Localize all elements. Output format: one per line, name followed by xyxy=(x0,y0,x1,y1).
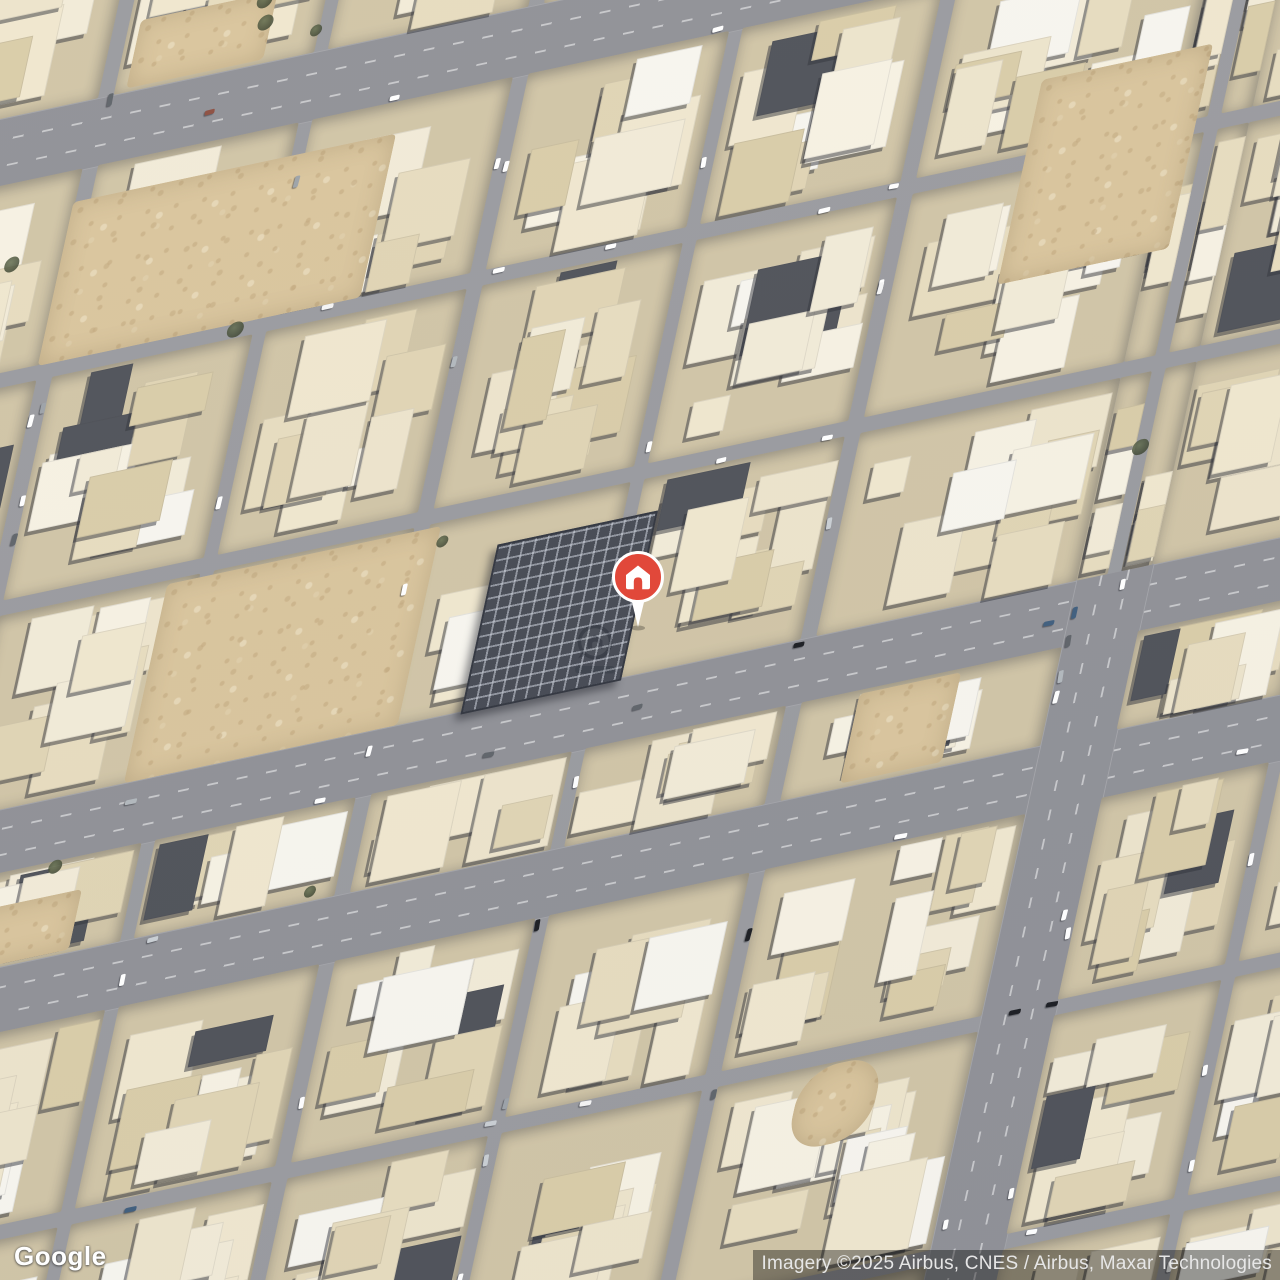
satellite-map[interactable]: Google Imagery ©2025 Airbus, CNES / Airb… xyxy=(0,0,1280,1280)
location-marker[interactable] xyxy=(606,549,670,633)
map-attribution: Imagery ©2025 Airbus, CNES / Airbus, Max… xyxy=(753,1250,1280,1280)
google-logo[interactable]: Google xyxy=(14,1241,107,1272)
atmosphere-overlay xyxy=(0,0,1280,1280)
satellite-imagery xyxy=(0,0,1280,1280)
attribution-text: Imagery ©2025 Airbus, CNES / Airbus, Max… xyxy=(762,1253,1272,1274)
